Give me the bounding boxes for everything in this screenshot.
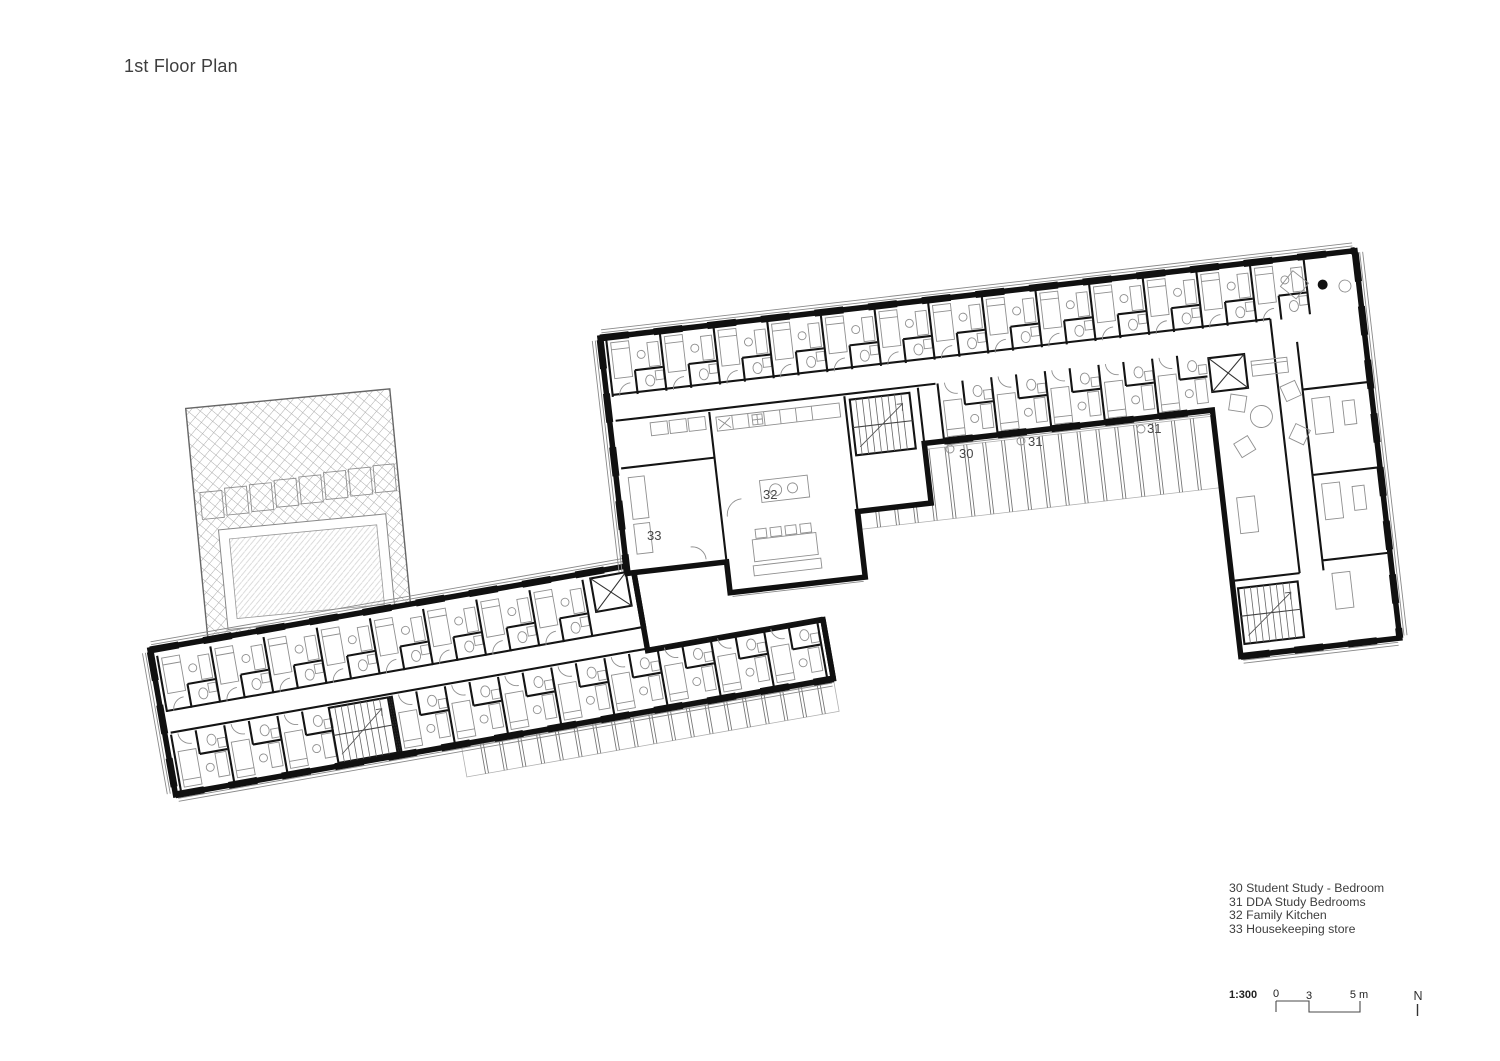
scale-bar-line (1276, 1001, 1360, 1012)
room-label-31a: 31 (1028, 434, 1042, 449)
room-label-30: 30 (959, 446, 973, 461)
room-label-31b: 31 (1147, 421, 1161, 436)
scale-tick-3: 3 (1306, 990, 1312, 1002)
detector-symbol (1137, 425, 1145, 433)
north-arrow-icon: N (1413, 989, 1422, 1016)
legend-item-30: 30 Student Study - Bedroom (1229, 882, 1384, 896)
room-label-32: 32 (763, 487, 777, 502)
north-label: N (1413, 989, 1422, 1003)
legend: 30 Student Study - Bedroom 31 DDA Study … (1229, 882, 1384, 936)
scale-tick-0: 0 (1273, 988, 1279, 1000)
legend-item-32: 32 Family Kitchen (1229, 909, 1384, 923)
room-label-33: 33 (647, 528, 661, 543)
legend-item-33: 33 Housekeeping store (1229, 923, 1384, 937)
scale-bar: 1:300 0 3 5 m (1229, 988, 1368, 1012)
legend-item-31: 31 DDA Study Bedrooms (1229, 896, 1384, 910)
scale-tick-5m: 5 m (1350, 989, 1368, 1001)
scale-ratio: 1:300 (1229, 989, 1257, 1001)
